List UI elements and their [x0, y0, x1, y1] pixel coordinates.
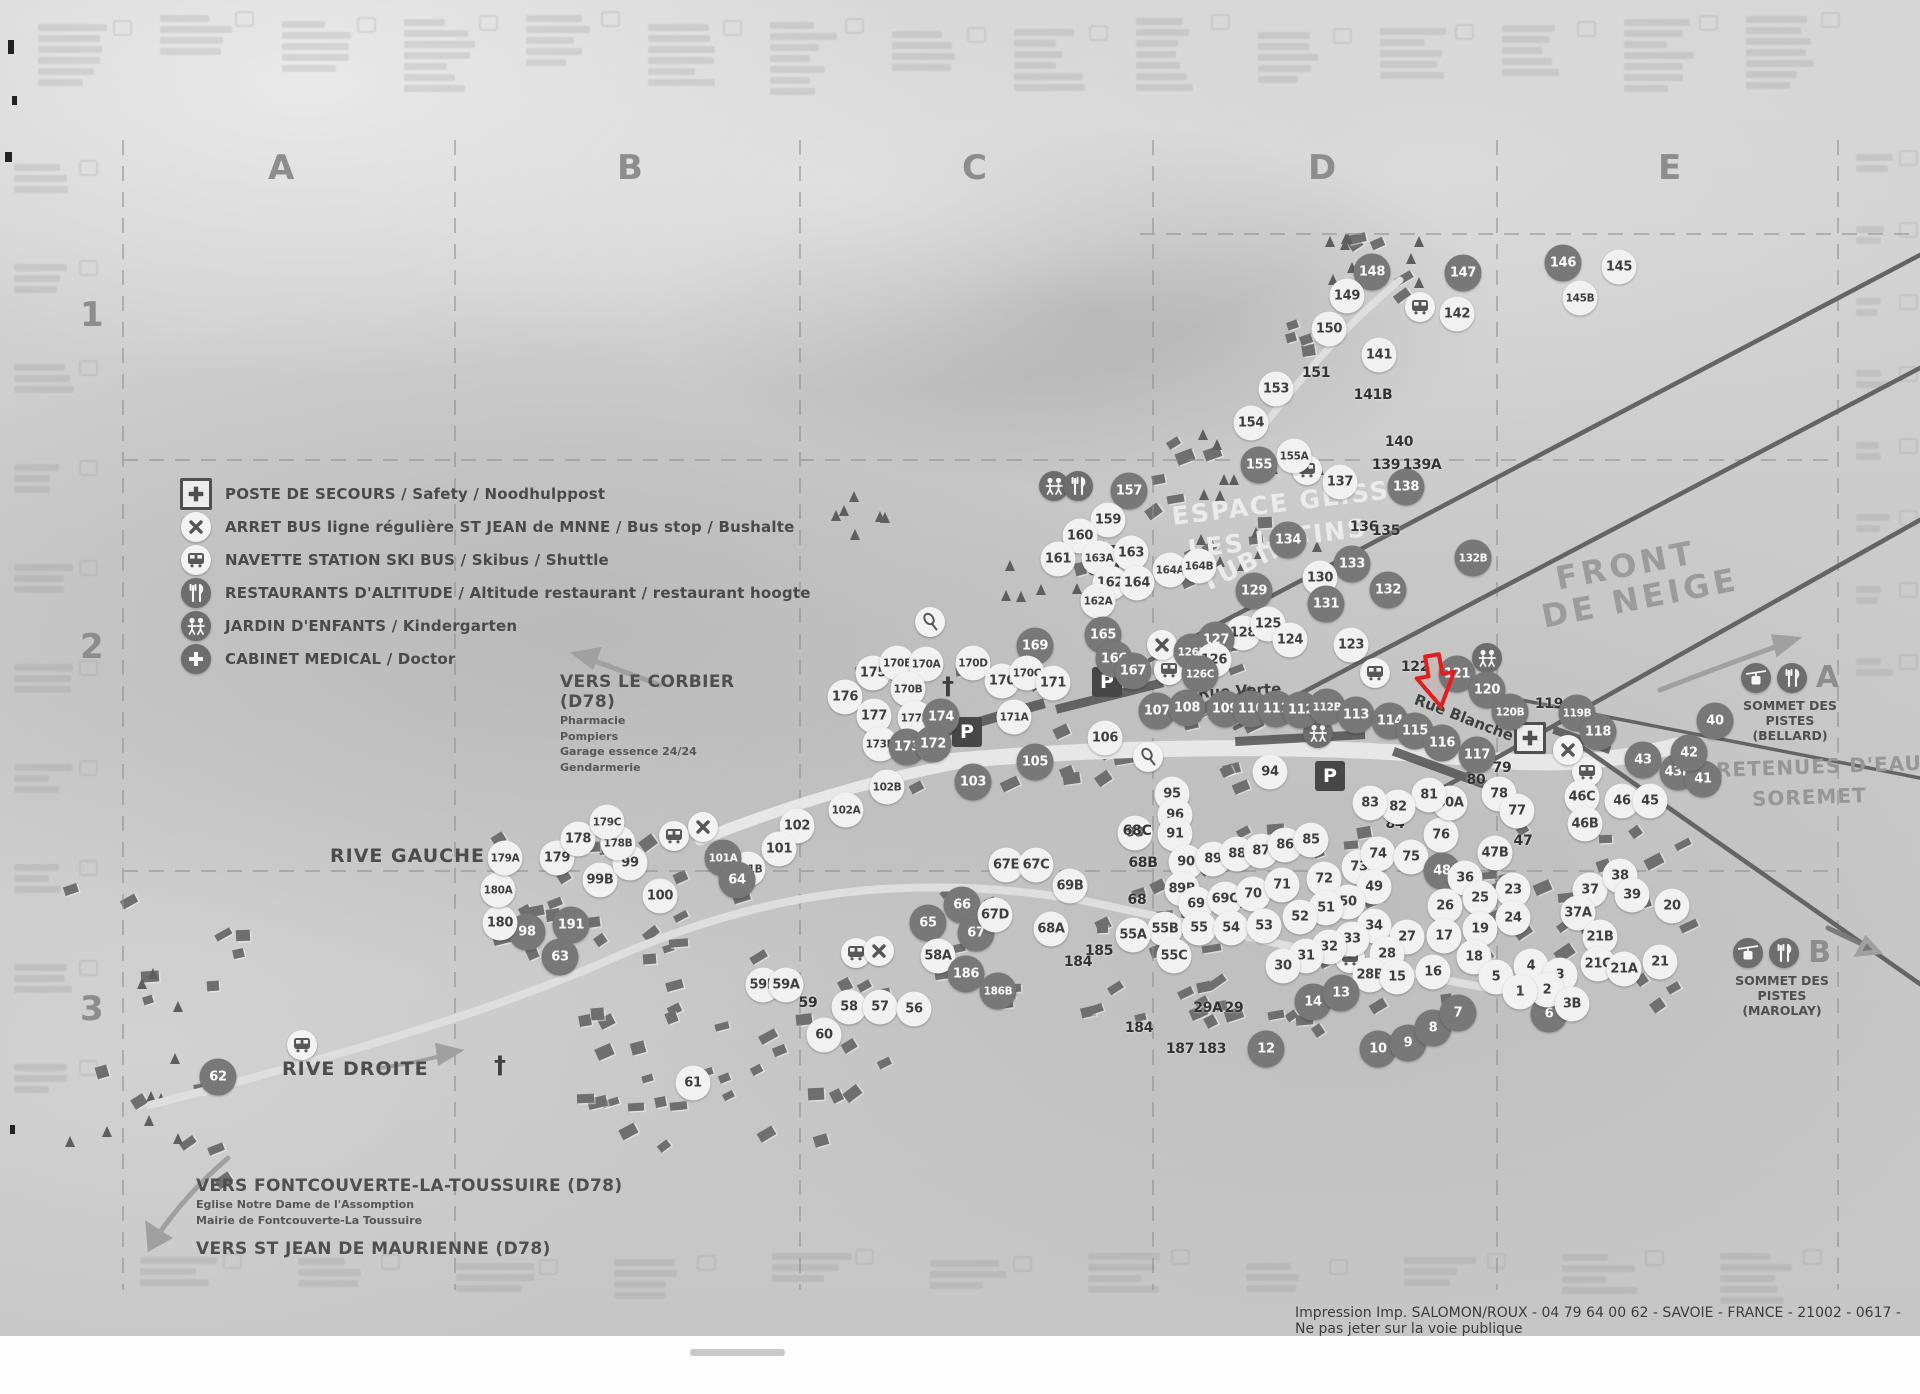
tennis-court-icon — [1133, 742, 1163, 772]
kindergarten-icon — [1472, 643, 1502, 673]
gondola-icon — [1741, 663, 1771, 693]
building-marker-77: 77 — [1500, 794, 1535, 829]
building-marker-150: 150 — [1312, 312, 1347, 347]
scan-speck — [8, 40, 14, 54]
building-marker-102A: 102A — [829, 793, 864, 828]
building-marker-142: 142 — [1440, 297, 1475, 332]
map-label-2: 2 — [80, 627, 104, 667]
direction-line: Mairie de Fontcouverte-La Toussuire — [196, 1214, 623, 1228]
building-marker-134: 134 — [1270, 522, 1307, 559]
shuttle-bus-icon — [659, 821, 689, 851]
building-marker-43: 43 — [1625, 742, 1662, 779]
building-marker-46B: 46B — [1568, 807, 1603, 842]
direction-line: Garage essence 24/24 — [560, 745, 734, 759]
legend-row: JARDIN D'ENFANTS / Kindergarten — [180, 609, 811, 642]
building-marker-131: 131 — [1308, 586, 1345, 623]
building-marker-135: 135 — [1372, 523, 1400, 539]
building-marker-61: 61 — [676, 1066, 711, 1101]
church-cross-icon: † — [494, 1051, 506, 1079]
direction-fontcouverte: VERS FONTCOUVERTE-LA-TOUSSUIRE (D78) Egl… — [196, 1176, 623, 1259]
building-marker-55: 55 — [1182, 911, 1217, 946]
building-marker-132: 132 — [1370, 572, 1407, 609]
building-marker-164: 164 — [1120, 566, 1155, 601]
print-imprint: Impression Imp. SALOMON/ROUX - 04 79 64 … — [1295, 1305, 1915, 1337]
building-marker-155: 155 — [1241, 447, 1278, 484]
shuttle-bus-icon — [1360, 658, 1390, 688]
direction-title: VERS FONTCOUVERTE-LA-TOUSSUIRE (D78) — [196, 1176, 623, 1196]
building-marker-124: 124 — [1273, 623, 1308, 658]
building-marker-180A: 180A — [481, 873, 516, 908]
building-marker-47: 47 — [1514, 833, 1533, 849]
building-marker-7: 7 — [1440, 995, 1477, 1032]
building-marker-154: 154 — [1234, 406, 1269, 441]
parking-icon: P — [1315, 761, 1345, 791]
building-marker-60: 60 — [807, 1018, 842, 1053]
building-marker-183: 183 — [1198, 1041, 1226, 1057]
summit-label: SOMMET DES PISTES(MAROLAY) — [1713, 973, 1851, 1018]
restaurant-icon — [1769, 938, 1799, 968]
doctor-icon — [180, 644, 212, 674]
building-marker-68B: 68B — [1128, 855, 1157, 871]
building-marker-147: 147 — [1445, 255, 1482, 292]
building-marker-184: 184 — [1064, 954, 1092, 970]
legend-row: POSTE DE SECOURS / Safety / Noodhulppost — [180, 477, 811, 510]
scan-speck — [10, 1125, 15, 1134]
building-marker-45: 45 — [1633, 784, 1668, 819]
building-marker-56: 56 — [897, 992, 932, 1027]
building-marker-116: 116 — [1424, 725, 1461, 762]
building-marker-65: 65 — [910, 905, 947, 942]
building-marker-68C: 68C — [1123, 823, 1152, 839]
building-marker-153: 153 — [1259, 372, 1294, 407]
building-marker-30: 30 — [1266, 949, 1301, 984]
building-marker-179A: 179A — [488, 841, 523, 876]
shuttle-bus-icon — [1405, 292, 1435, 322]
gondola-icon — [1733, 938, 1763, 968]
legend-text: ARRET BUS ligne régulière ST JEAN de MNN… — [225, 518, 794, 536]
building-marker-76: 76 — [1424, 818, 1459, 853]
map-label-c: C — [962, 148, 989, 188]
building-marker-141: 141 — [1362, 338, 1397, 373]
legend-row: CABINET MEDICAL / Doctor — [180, 642, 811, 675]
building-marker-85: 85 — [1294, 823, 1329, 858]
bus-stop-x-icon — [1147, 630, 1177, 660]
building-marker-161: 161 — [1041, 542, 1076, 577]
bus-stop-x-icon — [864, 936, 894, 966]
direction-le-corbier: VERS LE CORBIER (D78) Pharmacie Pompiers… — [560, 672, 734, 774]
bus-stop-x-icon — [1553, 735, 1583, 765]
tennis-court-icon — [915, 607, 945, 637]
building-marker-155A: 155A — [1277, 439, 1312, 474]
building-marker-151: 151 — [1302, 365, 1330, 381]
building-marker-117: 117 — [1459, 737, 1496, 774]
building-marker-120B: 120B — [1492, 694, 1529, 731]
building-marker-53: 53 — [1247, 909, 1282, 944]
building-marker-137: 137 — [1323, 465, 1358, 500]
map-label-d: D — [1308, 148, 1338, 188]
building-marker-146: 146 — [1545, 245, 1582, 282]
building-marker-12: 12 — [1248, 1031, 1285, 1068]
building-marker-29: 29 — [1225, 1000, 1244, 1016]
legend-row: ARRET BUS ligne régulière ST JEAN de MNN… — [180, 510, 811, 543]
building-marker-162A: 162A — [1081, 584, 1116, 619]
direction-st-jean: VERS ST JEAN DE MAURIENNE (D78) — [196, 1239, 623, 1259]
building-marker-62: 62 — [200, 1059, 237, 1096]
building-marker-81: 81 — [1412, 778, 1447, 813]
building-marker-106: 106 — [1088, 721, 1123, 756]
building-marker-74: 74 — [1361, 837, 1396, 872]
building-marker-184: 184 — [1125, 1020, 1153, 1036]
map-label-a: A — [268, 148, 296, 188]
building-marker-17: 17 — [1427, 919, 1462, 954]
building-marker-179C: 179C — [590, 805, 625, 840]
restaurant-icon — [1063, 471, 1093, 501]
summit-letter: B — [1808, 935, 1831, 970]
building-marker-113: 113 — [1338, 697, 1375, 734]
map-label-e: E — [1658, 148, 1683, 188]
building-marker-172: 172 — [915, 726, 952, 763]
building-marker-39: 39 — [1615, 878, 1650, 913]
legend-text: POSTE DE SECOURS / Safety / Noodhulppost — [225, 485, 605, 503]
building-marker-13: 13 — [1323, 975, 1360, 1012]
direction-line: Pharmacie — [560, 714, 734, 728]
legend-row: RESTAURANTS D'ALTITUDE / Altitude restau… — [180, 576, 811, 609]
map-label-rive-droite: RIVE DROITE — [282, 1058, 429, 1080]
building-marker-140: 140 — [1385, 434, 1413, 450]
building-marker-145: 145 — [1602, 250, 1637, 285]
building-marker-52: 52 — [1283, 900, 1318, 935]
map-label-b: B — [617, 148, 645, 188]
building-marker-171: 171 — [1036, 666, 1071, 701]
summit-bellard: A SOMMET DES PISTES(BELLARD) — [1725, 660, 1855, 743]
building-marker-138: 138 — [1388, 469, 1425, 506]
building-marker-47B: 47B — [1478, 836, 1513, 871]
building-marker-129: 129 — [1236, 573, 1273, 610]
scan-speck — [5, 152, 12, 162]
building-marker-58: 58 — [832, 990, 867, 1025]
shuttle-bus-icon — [287, 1030, 317, 1060]
direction-line: Eglise Notre Dame de l'Assomption — [196, 1198, 623, 1212]
building-marker-102B: 102B — [870, 770, 905, 805]
shuttle-bus-icon — [180, 545, 212, 575]
first-aid-cross-icon — [180, 478, 212, 510]
building-marker-55A: 55A — [1116, 918, 1151, 953]
building-marker-126C: 126C — [1182, 656, 1219, 693]
building-marker-68A: 68A — [1034, 912, 1069, 947]
building-marker-16: 16 — [1416, 955, 1451, 990]
map-label-rive-gauche: RIVE GAUCHE — [330, 845, 485, 867]
building-marker-94: 94 — [1253, 755, 1288, 790]
restaurant-icon — [1777, 663, 1807, 693]
building-marker-71: 71 — [1265, 868, 1300, 903]
building-marker-63: 63 — [542, 939, 579, 976]
summit-letter: A — [1816, 660, 1839, 695]
building-marker-42: 42 — [1671, 735, 1708, 772]
building-marker-164B: 164B — [1182, 549, 1217, 584]
building-marker-21: 21 — [1643, 945, 1678, 980]
building-marker-3B: 3B — [1555, 987, 1590, 1022]
building-marker-118: 118 — [1580, 714, 1617, 751]
map-label-soremet: SOREMET — [1752, 783, 1867, 811]
legend-text: RESTAURANTS D'ALTITUDE / Altitude restau… — [225, 584, 811, 602]
building-marker-105: 105 — [1017, 744, 1054, 781]
building-marker-55C: 55C — [1157, 939, 1192, 974]
summit-marolay: B SOMMET DES PISTES(MAROLAY) — [1713, 935, 1851, 1018]
building-marker-59: 59 — [799, 995, 818, 1011]
scan-speck — [12, 96, 17, 105]
building-marker-180: 180 — [483, 906, 518, 941]
direction-line: Gendarmerie — [560, 761, 734, 775]
scan-smudge — [690, 1349, 785, 1356]
church-cross-icon: † — [942, 672, 954, 700]
building-marker-54: 54 — [1214, 911, 1249, 946]
building-marker-1: 1 — [1503, 975, 1538, 1010]
building-marker-123: 123 — [1334, 628, 1369, 663]
building-marker-149: 149 — [1330, 279, 1365, 314]
building-marker-167: 167 — [1115, 653, 1152, 690]
building-marker-132B: 132B — [1455, 540, 1492, 577]
bus-stop-x-icon — [180, 512, 212, 542]
building-marker-69B: 69B — [1053, 869, 1088, 904]
building-marker-80: 80 — [1467, 772, 1486, 788]
building-marker-83: 83 — [1353, 786, 1388, 821]
legend-text: CABINET MEDICAL / Doctor — [225, 650, 456, 668]
map-legend: POSTE DE SECOURS / Safety / Noodhulppost… — [180, 477, 811, 675]
kindergarten-icon — [180, 611, 212, 641]
building-marker-171A: 171A — [997, 700, 1032, 735]
building-marker-67C: 67C — [1019, 848, 1054, 883]
building-marker-68: 68 — [1128, 892, 1147, 908]
map-label-3: 3 — [80, 989, 104, 1029]
building-marker-101: 101 — [762, 832, 797, 867]
scanned-village-map: 148147146145145B149150142141151153154141… — [0, 0, 1920, 1394]
building-marker-79: 79 — [1493, 760, 1512, 776]
building-marker-21A: 21A — [1607, 952, 1642, 987]
restaurant-icon — [180, 578, 212, 608]
legend-row: NAVETTE STATION SKI BUS / Skibus / Shutt… — [180, 543, 811, 576]
building-marker-186B: 186B — [980, 973, 1017, 1010]
summit-label: SOMMET DES PISTES(BELLARD) — [1725, 698, 1855, 743]
building-marker-187: 187 — [1166, 1041, 1194, 1057]
building-marker-25: 25 — [1463, 881, 1498, 916]
building-marker-20: 20 — [1655, 889, 1690, 924]
building-marker-64: 64 — [719, 862, 756, 899]
building-marker-15: 15 — [1380, 960, 1415, 995]
legend-text: JARDIN D'ENFANTS / Kindergarten — [225, 617, 517, 635]
building-marker-108: 108 — [1169, 690, 1206, 727]
building-marker-100: 100 — [643, 879, 678, 914]
building-marker-141B: 141B — [1354, 387, 1393, 403]
paper-edge — [0, 1336, 1920, 1394]
building-marker-133: 133 — [1334, 546, 1371, 583]
building-marker-24: 24 — [1496, 901, 1531, 936]
building-marker-29A: 29A — [1193, 1000, 1222, 1016]
direction-line: Pompiers — [560, 730, 734, 744]
building-marker-67D: 67D — [978, 898, 1013, 933]
building-marker-57: 57 — [863, 990, 898, 1025]
map-label-1: 1 — [80, 295, 104, 335]
direction-road: (D78) — [560, 692, 734, 712]
building-marker-145B: 145B — [1563, 281, 1598, 316]
legend-text: NAVETTE STATION SKI BUS / Skibus / Shutt… — [225, 551, 609, 569]
building-marker-103: 103 — [955, 764, 992, 801]
direction-title: VERS LE CORBIER — [560, 672, 734, 692]
bus-stop-x-icon — [688, 812, 718, 842]
